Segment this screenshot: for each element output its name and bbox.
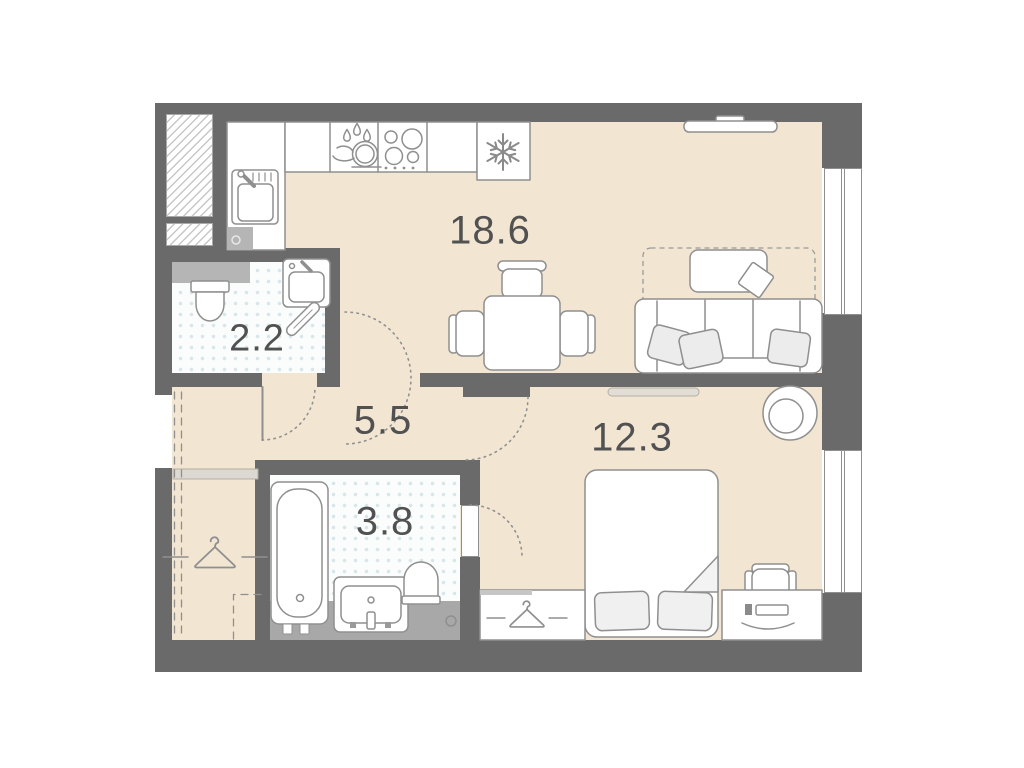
floor-plan-canvas: 18.6 2.2 5.5 12.3 3.8 — [0, 0, 1024, 768]
kitchen-sink-icon — [232, 170, 278, 224]
door-swing-arc-icon — [470, 505, 522, 557]
bedroom-wardrobe — [480, 590, 585, 640]
coffee-table-icon — [690, 250, 774, 298]
room-label-bathroom-small: 2.2 — [229, 318, 285, 361]
entry-shelf — [173, 469, 258, 479]
pillow-icon — [678, 328, 724, 370]
toilet-icon — [402, 562, 440, 604]
washbasin-icon — [283, 259, 330, 307]
entry-closet — [163, 392, 267, 639]
pillow-icon — [767, 328, 811, 367]
room-label-bedroom: 12.3 — [591, 416, 673, 461]
fridge-snowflake-icon — [477, 122, 530, 180]
pillow-icon — [657, 591, 712, 631]
hanger-icon — [163, 537, 267, 567]
pillow-icon — [594, 591, 649, 631]
dining-set — [449, 261, 595, 370]
toilet-icon — [191, 281, 229, 321]
bath-shelf — [172, 262, 250, 283]
washbasin-icon — [334, 577, 408, 632]
bed-icon — [585, 470, 718, 637]
tv-icon — [684, 116, 777, 132]
room-label-bathroom-large: 3.8 — [356, 500, 415, 545]
furniture-layer — [0, 0, 1024, 768]
room-label-kitchen-living: 18.6 — [449, 209, 531, 254]
armchair-icon — [763, 386, 817, 440]
bathtub-icon — [271, 482, 328, 634]
dining-table-icon — [484, 296, 560, 370]
door-swing-arc-icon — [465, 397, 528, 460]
room-label-hallway: 5.5 — [354, 399, 413, 444]
sofa-icon — [635, 299, 822, 373]
radiator-icon — [608, 388, 699, 396]
desk-icon — [722, 564, 822, 640]
door-swing-arc-icon — [262, 387, 315, 440]
